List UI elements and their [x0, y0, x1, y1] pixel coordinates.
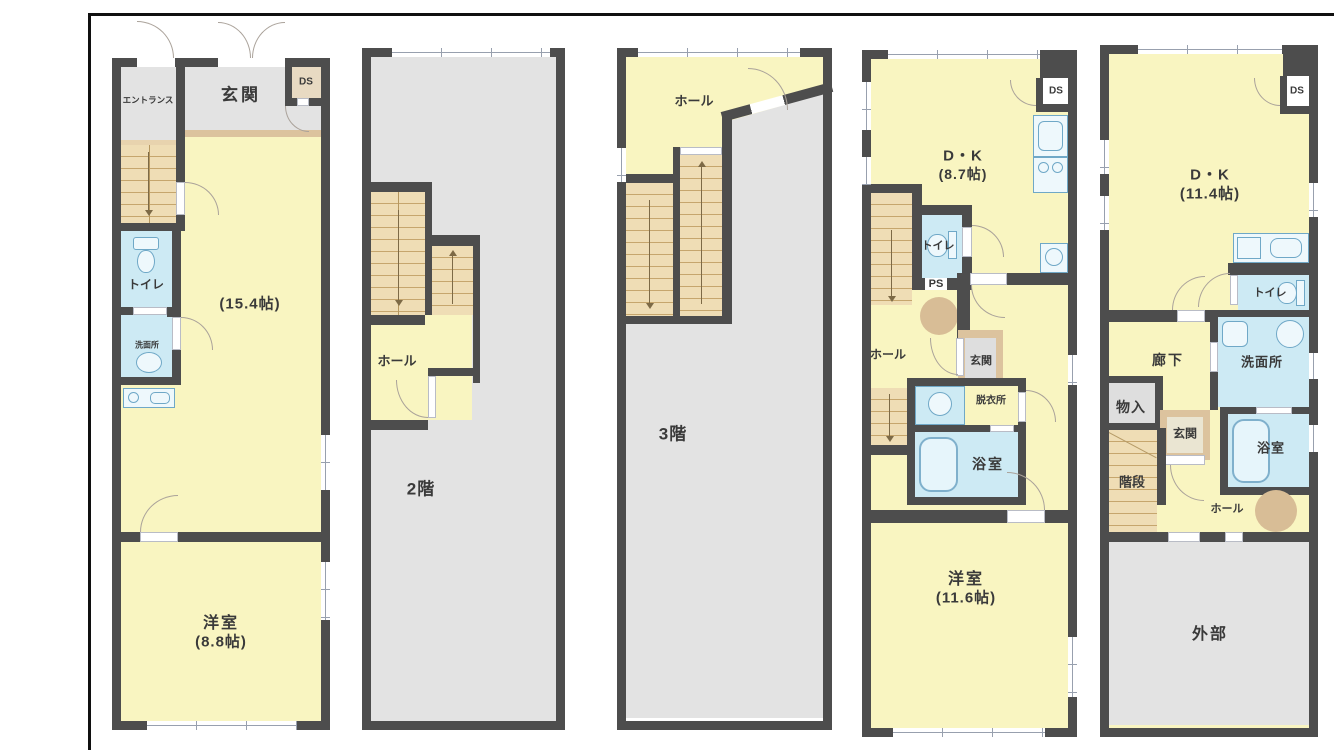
window: [638, 48, 800, 57]
window: [1100, 196, 1109, 230]
label-western-room-size: (8.8帖): [195, 631, 247, 652]
label-floor-3f: 3階: [659, 420, 687, 445]
window: [862, 157, 871, 185]
door-arc: [252, 22, 285, 58]
label-bath: 浴室: [972, 454, 1004, 474]
floorplan-page: { "colors": { "wall": "#4d4d4d", "room_y…: [0, 0, 1334, 750]
label-storage: 物入: [1116, 397, 1146, 417]
label-western-room: 洋室: [948, 565, 984, 589]
label-dressing: 脱衣所: [976, 392, 1006, 407]
window: [888, 50, 1040, 59]
window: [1068, 637, 1077, 697]
label-hall: ホール: [870, 346, 906, 363]
page-border-top: [88, 13, 1334, 16]
label-hall: ホール: [674, 91, 713, 110]
label-dk-size: (8.7帖): [939, 164, 988, 184]
label-western-room: 洋室: [203, 609, 239, 633]
label-ds: DS: [1049, 86, 1063, 97]
label-dk: D・K: [943, 145, 983, 166]
outer-wall: [362, 48, 565, 730]
window: [147, 721, 297, 730]
label-bath: 浴室: [1257, 438, 1285, 457]
label-floor-2f: 2階: [407, 475, 435, 500]
label-genkan: 玄関: [221, 81, 261, 106]
label-exterior: 外部: [1192, 620, 1228, 644]
label-genkan: 玄関: [1173, 425, 1197, 442]
label-hall: ホール: [1211, 500, 1244, 516]
outer-wall: [617, 48, 832, 730]
label-ds: DS: [299, 77, 313, 88]
window: [862, 82, 871, 130]
label-hall: ホール: [377, 351, 416, 370]
label-dk-size: (11.4帖): [1180, 183, 1240, 204]
door-opening: [137, 58, 175, 67]
window: [1309, 183, 1318, 217]
window: [392, 48, 550, 57]
label-toilet: トイレ: [922, 237, 955, 253]
label-toilet: トイレ: [1254, 284, 1287, 300]
label-toilet: トイレ: [128, 276, 164, 293]
window: [321, 562, 330, 620]
label-stairs: 階段: [1119, 472, 1145, 491]
label-ps: PS: [929, 278, 944, 290]
door-arc: [137, 21, 174, 58]
window: [893, 728, 1045, 737]
label-washroom: 洗面所: [135, 340, 159, 351]
window: [617, 148, 626, 182]
page-border-left: [88, 13, 91, 750]
label-ds: DS: [1290, 86, 1304, 97]
window: [1138, 45, 1282, 54]
label-entrance-lobby: エントランス: [123, 94, 174, 106]
window: [1100, 140, 1109, 174]
window: [321, 435, 330, 490]
label-living-size: (15.4帖): [219, 293, 280, 314]
window: [1309, 353, 1318, 379]
window: [1068, 355, 1077, 385]
door-arc: [218, 22, 251, 58]
label-corridor: 廊下: [1152, 350, 1184, 370]
door-opening: [218, 58, 285, 67]
label-genkan: 玄関: [970, 352, 992, 368]
window: [1309, 425, 1318, 452]
label-western-room-size: (11.6帖): [936, 587, 996, 608]
label-dk: D・K: [1190, 164, 1230, 185]
label-washroom: 洗面所: [1241, 352, 1283, 371]
